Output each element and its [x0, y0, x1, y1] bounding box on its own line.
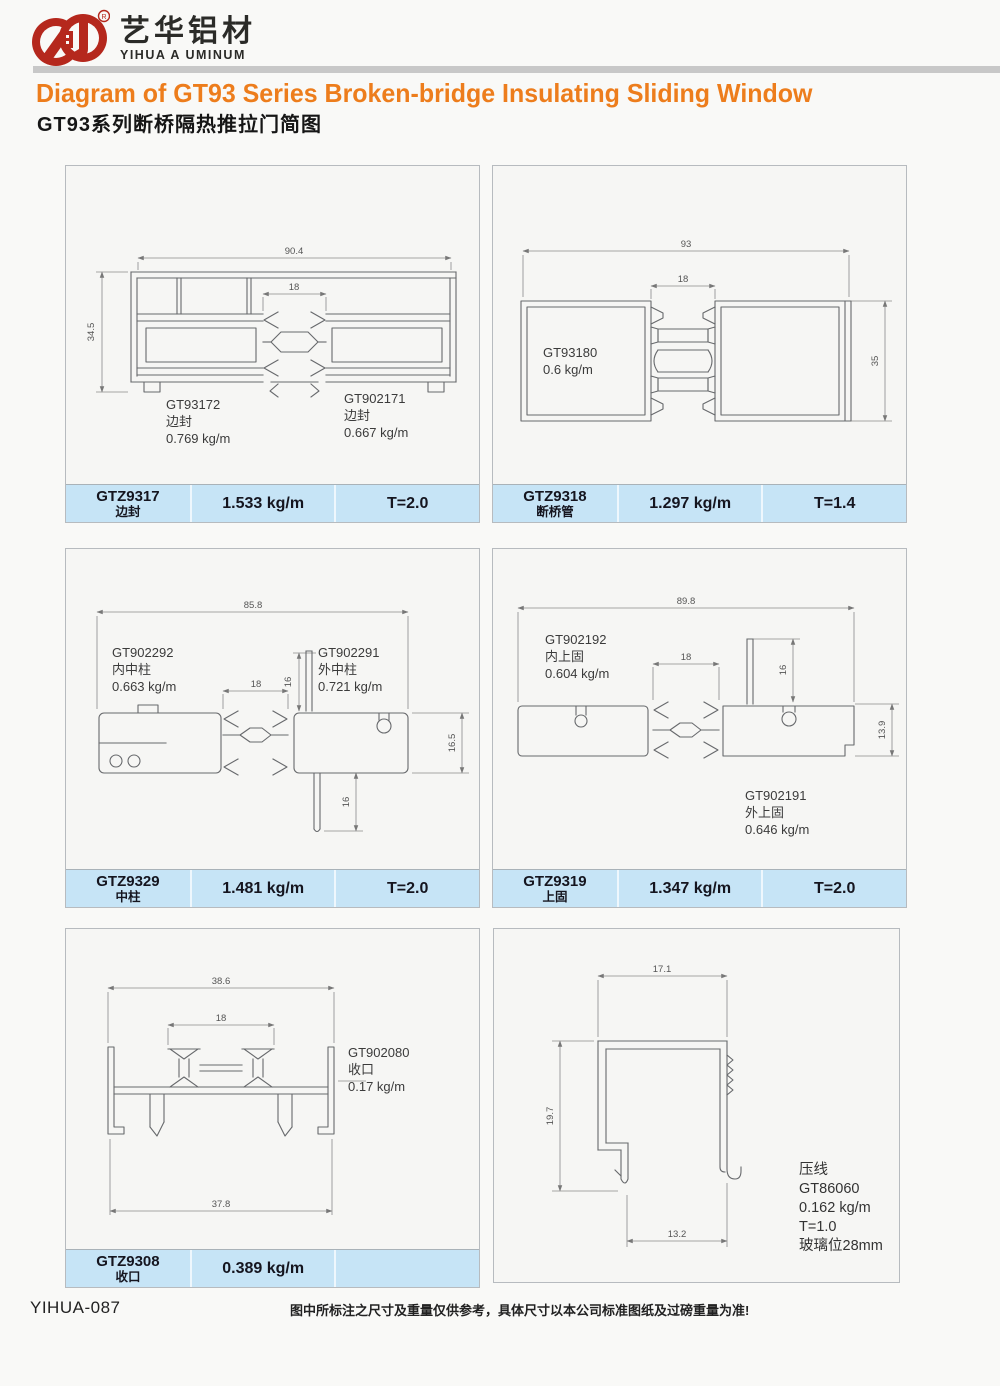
part-code: GT902291 — [318, 644, 382, 661]
dim-label: 16 — [778, 665, 789, 676]
part-label: GT93180 0.6 kg/m — [543, 344, 597, 378]
dimensions: 38.6 18 37.8 — [108, 976, 366, 1215]
dim-label: 17.1 — [653, 964, 672, 975]
spec-table: GTZ9329 中柱 1.481 kg/m T=2.0 — [66, 869, 479, 907]
spec-thickness-cell: T=2.0 — [761, 870, 906, 907]
part-thickness: T=1.0 — [799, 1218, 883, 1237]
part-weight: 0.769 kg/m — [166, 430, 230, 447]
spec-thickness-cell — [334, 1250, 479, 1287]
part-code: GT86060 — [799, 1180, 883, 1199]
spec-model: GTZ9308 — [96, 1254, 159, 1270]
spec-weight: 1.297 kg/m — [649, 495, 731, 513]
spec-table: GTZ9319 上固 1.347 kg/m T=2.0 — [493, 869, 906, 907]
spec-model-cell: GTZ9318 断桥管 — [493, 485, 617, 522]
dimensions: 85.8 18 16 16.5 16 — [97, 600, 469, 831]
dim-label: 16 — [283, 677, 294, 688]
brand-logo: R 艺华铝材 YIHUA A UMINUM — [30, 8, 256, 70]
dim-label: 38.6 — [212, 976, 231, 987]
spec-model-cell: GTZ9329 中柱 — [66, 870, 190, 907]
spec-thickness: T=1.4 — [814, 495, 855, 513]
profile-drawing: 90.4 18 34.5 — [66, 166, 481, 487]
page-code: YIHUA-087 — [30, 1298, 120, 1318]
part-label: GT902080 收口 0.17 kg/m — [348, 1044, 409, 1095]
spec-model: GTZ9318 — [523, 489, 586, 505]
dim-label: 89.8 — [677, 596, 696, 607]
dim-label: 19.7 — [545, 1107, 556, 1126]
dim-label: 16.5 — [447, 734, 458, 753]
part-name: 压线 — [799, 1161, 883, 1180]
part-weight: 0.667 kg/m — [344, 424, 408, 441]
part-label: GT902171 边封 0.667 kg/m — [344, 390, 408, 441]
part-code: GT902292 — [112, 644, 176, 661]
part-label: GT902191 外上固 0.646 kg/m — [745, 787, 809, 838]
part-name: 边封 — [344, 407, 408, 424]
profile-drawing: 89.8 18 16 13.9 — [493, 549, 908, 872]
part-label: GT902291 外中柱 0.721 kg/m — [318, 644, 382, 695]
brand-monogram-icon: R — [30, 8, 110, 70]
page-title-en: Diagram of GT93 Series Broken-bridge Ins… — [36, 78, 812, 109]
part-weight: 0.604 kg/m — [545, 665, 609, 682]
spec-thickness-cell: T=2.0 — [334, 485, 479, 522]
page-title-cn: GT93系列断桥隔热推拉门简图 — [37, 108, 322, 137]
part-weight: 0.646 kg/m — [745, 821, 809, 838]
part-name: 外上固 — [745, 804, 809, 821]
spec-weight: 0.389 kg/m — [222, 1260, 304, 1278]
spec-weight-cell: 1.533 kg/m — [190, 485, 334, 522]
spec-name: 上固 — [542, 890, 567, 904]
part-weight: 0.162 kg/m — [799, 1199, 883, 1218]
profile-panel-gtz9319: 89.8 18 16 13.9 — [492, 548, 907, 908]
part-name: 内中柱 — [112, 661, 176, 678]
dimensions: 17.1 19.7 13.2 — [545, 964, 727, 1247]
part-label: GT902292 内中柱 0.663 kg/m — [112, 644, 176, 695]
part-label: GT93172 边封 0.769 kg/m — [166, 396, 230, 447]
profile-drawing: 38.6 18 37.8 — [66, 929, 481, 1252]
dim-label: 34.5 — [86, 323, 97, 342]
spec-table: GTZ9308 收口 0.389 kg/m — [66, 1249, 479, 1287]
profile-drawing: 93 18 35 — [493, 166, 908, 487]
part-weight: 0.6 kg/m — [543, 361, 597, 378]
spec-name: 收口 — [115, 1270, 140, 1284]
profile-outline — [598, 1041, 741, 1183]
part-code: GT902192 — [545, 631, 609, 648]
dim-label: 85.8 — [244, 600, 263, 611]
profile-panel-gtz9318: 93 18 35 — [492, 165, 907, 523]
profile-outline — [108, 1047, 334, 1136]
spec-model: GTZ9319 — [523, 874, 586, 890]
dim-label: 18 — [251, 679, 262, 690]
spec-weight-cell: 1.297 kg/m — [617, 485, 761, 522]
brand-text: 艺华铝材 YIHUA A UMINUM — [120, 16, 256, 63]
part-name: 边封 — [166, 413, 230, 430]
spec-table: GTZ9317 边封 1.533 kg/m T=2.0 — [66, 484, 479, 522]
dim-label: 93 — [681, 239, 692, 250]
part-code: GT902191 — [745, 787, 809, 804]
dim-label: 13.9 — [877, 721, 888, 740]
part-label: 压线 GT86060 0.162 kg/m T=1.0 玻璃位28mm — [799, 1161, 883, 1256]
disclaimer-text: 图中所标注之尺寸及重量仅供参考，具体尺寸以本公司标准图纸及过磅重量为准! — [290, 1300, 749, 1319]
spec-model: GTZ9317 — [96, 489, 159, 505]
spec-thickness: T=2.0 — [814, 880, 855, 898]
spec-thickness-cell: T=2.0 — [334, 870, 479, 907]
spec-table: GTZ9318 断桥管 1.297 kg/m T=1.4 — [493, 484, 906, 522]
registered-mark: R — [101, 14, 106, 21]
spec-model-cell: GTZ9308 收口 — [66, 1250, 190, 1287]
part-name: 外中柱 — [318, 661, 382, 678]
part-label: GT902192 内上固 0.604 kg/m — [545, 631, 609, 682]
spec-model-cell: GTZ9317 边封 — [66, 485, 190, 522]
dim-label: 16 — [341, 797, 352, 808]
part-weight: 0.721 kg/m — [318, 678, 382, 695]
part-code: GT93172 — [166, 396, 230, 413]
profile-panel-gtz9317: 90.4 18 34.5 — [65, 165, 480, 523]
dim-label: 18 — [678, 274, 689, 285]
spec-name: 中柱 — [115, 890, 140, 904]
profile-panel-gt86060: 17.1 19.7 13.2 压线 GT86060 0 — [493, 928, 900, 1283]
part-weight: 0.17 kg/m — [348, 1078, 409, 1095]
spec-thickness-cell: T=1.4 — [761, 485, 906, 522]
profile-drawing: 85.8 18 16 16.5 16 — [66, 549, 481, 872]
part-glass-position: 玻璃位28mm — [799, 1237, 883, 1256]
spec-weight: 1.347 kg/m — [649, 880, 731, 898]
spec-model: GTZ9329 — [96, 874, 159, 890]
profile-panel-gtz9329: 85.8 18 16 16.5 16 — [65, 548, 480, 908]
spec-weight-cell: 1.347 kg/m — [617, 870, 761, 907]
spec-weight: 1.533 kg/m — [222, 495, 304, 513]
dim-label: 13.2 — [668, 1229, 687, 1240]
part-weight: 0.663 kg/m — [112, 678, 176, 695]
dim-label: 18 — [216, 1013, 227, 1024]
dim-label: 35 — [870, 356, 881, 367]
part-code: GT902080 — [348, 1044, 409, 1061]
part-name: 内上固 — [545, 648, 609, 665]
profile-panel-gtz9308: 38.6 18 37.8 — [65, 928, 480, 1288]
dim-label: 18 — [289, 282, 300, 293]
dim-label: 37.8 — [212, 1199, 231, 1210]
spec-thickness: T=2.0 — [387, 880, 428, 898]
spec-model-cell: GTZ9319 上固 — [493, 870, 617, 907]
brand-name-cn: 艺华铝材 — [120, 16, 256, 48]
header-divider-bar — [33, 66, 1000, 73]
dim-label: 90.4 — [285, 246, 304, 257]
spec-weight-cell: 0.389 kg/m — [190, 1250, 334, 1287]
part-code: GT93180 — [543, 344, 597, 361]
part-code: GT902171 — [344, 390, 408, 407]
spec-weight-cell: 1.481 kg/m — [190, 870, 334, 907]
spec-name: 断桥管 — [536, 505, 574, 519]
spec-name: 边封 — [115, 505, 140, 519]
part-name: 收口 — [348, 1061, 409, 1078]
spec-weight: 1.481 kg/m — [222, 880, 304, 898]
catalog-page: R 艺华铝材 YIHUA A UMINUM Diagram of GT93 Se… — [0, 0, 1000, 1386]
dim-label: 18 — [681, 652, 692, 663]
brand-name-en: YIHUA A UMINUM — [120, 48, 256, 63]
spec-thickness: T=2.0 — [387, 495, 428, 513]
